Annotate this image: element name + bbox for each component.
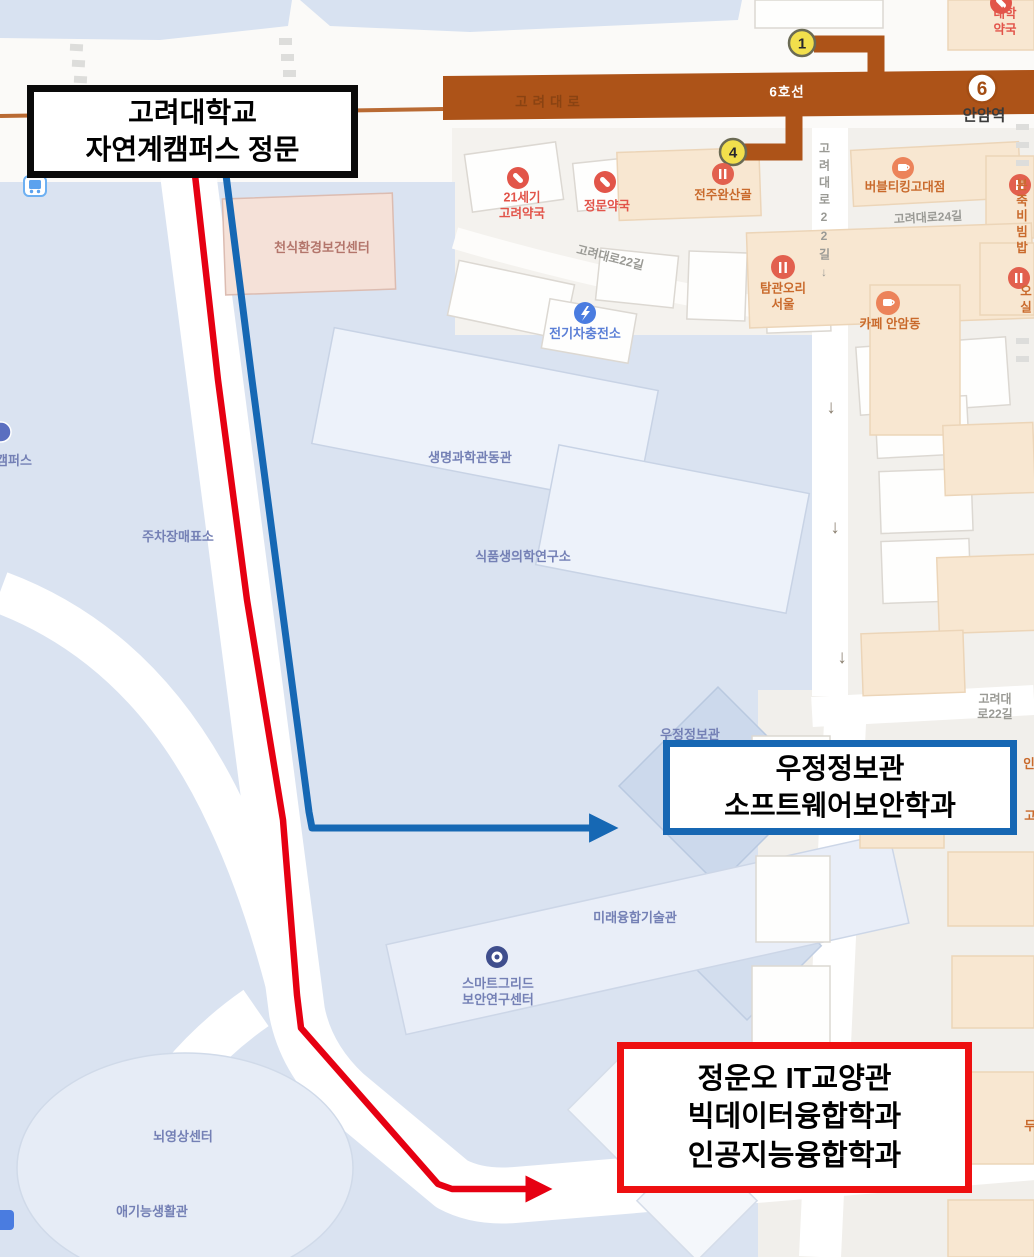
woojung-annotation-box: 우정정보관 소프트웨어보안학과 <box>663 740 1017 835</box>
red-box-line1: 정운오 IT교양관 <box>624 1060 965 1098</box>
gate-annotation-box: 고려대학교 자연계캠퍼스 정문 <box>27 85 358 178</box>
red-box-line2: 빅데이터융합학과 <box>624 1098 965 1136</box>
it-building-annotation-box: 정운오 IT교양관 빅데이터융합학과 인공지능융합학과 <box>617 1042 972 1193</box>
gate-box-line2: 자연계캠퍼스 정문 <box>34 132 351 169</box>
map-screenshot: 1 4 6 <box>0 0 1034 1257</box>
blue-route <box>226 175 592 828</box>
red-box-line3: 인공지능융합학과 <box>624 1137 965 1175</box>
blue-box-line2: 소프트웨어보안학과 <box>670 788 1010 825</box>
gate-box-line1: 고려대학교 <box>34 95 351 132</box>
blue-box-line1: 우정정보관 <box>670 751 1010 788</box>
